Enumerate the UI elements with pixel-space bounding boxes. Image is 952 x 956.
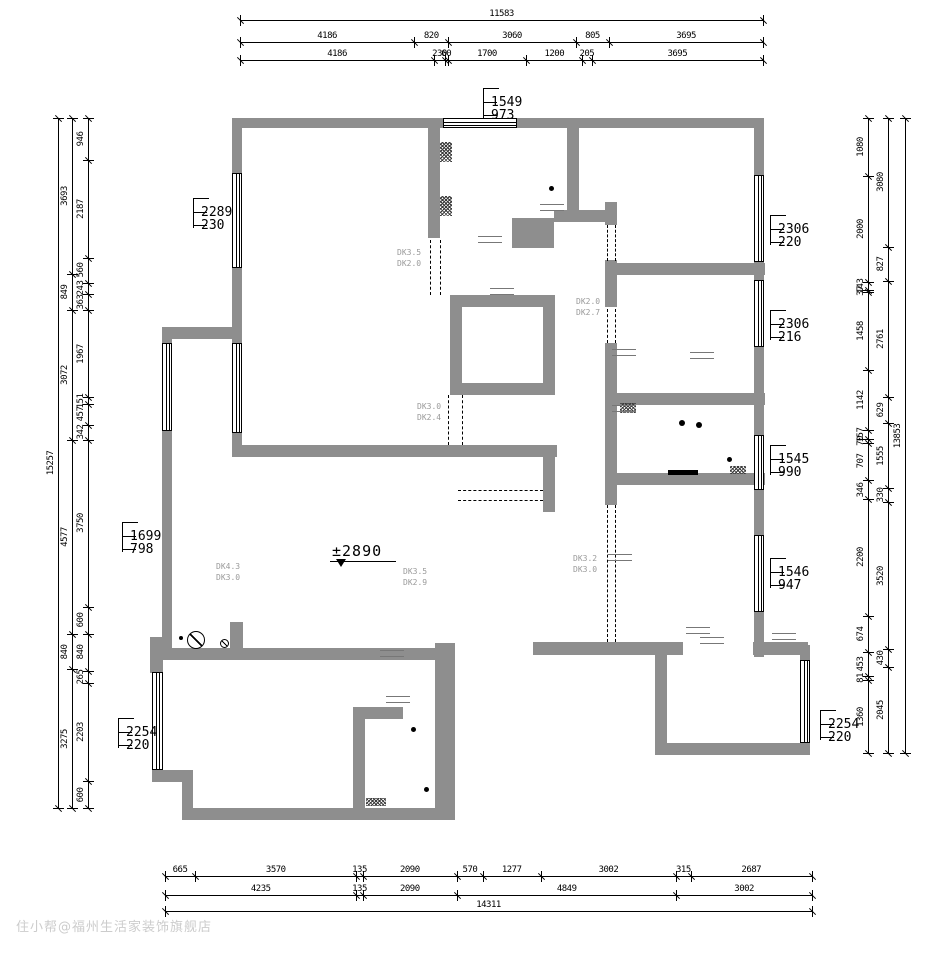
dim-label: 2687 <box>726 865 776 875</box>
bracket-line <box>820 710 836 711</box>
dim-label: 3080 <box>876 157 886 207</box>
annotation-tick <box>386 702 410 703</box>
bracket-line <box>770 310 771 340</box>
fixture-dot <box>179 636 183 640</box>
dim-label: 2203 <box>76 707 86 757</box>
window <box>754 175 764 262</box>
annotation-tick <box>540 204 564 205</box>
annotation-tick <box>690 352 714 353</box>
dim-line <box>165 895 812 896</box>
floorplan-canvas: ±2890 住小帮@福州生活家装饰旗舰店 1158341868203060805… <box>0 0 952 956</box>
window <box>152 672 163 770</box>
wall <box>232 302 242 343</box>
bracket-line <box>770 215 771 245</box>
fixture-bar <box>668 470 698 475</box>
dim-label: 430 <box>876 633 886 683</box>
bracket-label: 220 <box>778 236 801 249</box>
dim-label: 1080 <box>856 122 866 172</box>
bracket-line <box>193 198 194 228</box>
bracket-label: 216 <box>778 331 801 344</box>
wall <box>232 118 443 128</box>
dim-label: 2761 <box>876 314 886 364</box>
dim-label: 849 <box>60 267 70 317</box>
bracket-line <box>122 522 138 523</box>
fixture-dot <box>727 457 732 462</box>
dim-label: 3072 <box>60 350 70 400</box>
bracket-label: 230 <box>201 219 224 232</box>
dim-label: 820 <box>406 31 456 41</box>
dashed-opening <box>440 240 441 295</box>
wall <box>754 347 764 435</box>
dim-ext <box>165 890 166 901</box>
dim-label: 315 <box>658 865 708 875</box>
dim-ext <box>526 55 527 66</box>
dim-ext <box>883 753 894 754</box>
dim-label: 14311 <box>464 900 514 910</box>
wall <box>605 202 617 225</box>
dim-ext <box>812 871 813 882</box>
wall <box>450 295 462 393</box>
annotation-tick <box>490 294 514 295</box>
dim-label: 827 <box>876 239 886 289</box>
dim-ext <box>863 370 874 371</box>
annotation-tick <box>612 355 636 356</box>
dim-label: 3002 <box>583 865 633 875</box>
dim-label: 3750 <box>76 498 86 548</box>
fixture-dot <box>424 787 429 792</box>
dim-ext <box>883 118 894 119</box>
dim-label: 4186 <box>302 31 352 41</box>
dim-ext <box>240 37 241 48</box>
wall <box>543 295 555 395</box>
fixture-dot <box>549 186 554 191</box>
watermark-text: 住小帮@福州生活家装饰旗舰店 <box>16 916 212 935</box>
dim-line <box>240 60 763 61</box>
wall <box>232 268 242 302</box>
dim-ext <box>240 55 241 66</box>
dim-ext <box>676 890 677 901</box>
fixture-dot <box>411 727 416 732</box>
dim-ext <box>900 118 911 119</box>
dim-label: 363 <box>76 277 86 327</box>
wall <box>655 655 667 755</box>
dim-ext <box>763 15 764 26</box>
dim-label: 629 <box>876 385 886 435</box>
wall <box>605 343 617 473</box>
dim-label: 135 <box>335 865 385 875</box>
dim-label: 13853 <box>893 411 903 461</box>
window <box>754 535 764 612</box>
dim-ext <box>457 890 458 901</box>
bracket-line <box>483 88 499 89</box>
annotation-tick <box>772 639 796 640</box>
bracket-line <box>483 88 484 118</box>
fixture-dot <box>679 420 685 426</box>
dim-ext <box>763 55 764 66</box>
window <box>232 343 242 433</box>
dim-label: 135 <box>335 884 385 894</box>
wall <box>428 128 440 238</box>
dashed-opening <box>607 505 608 642</box>
bracket-line <box>820 710 821 740</box>
faint-label: DK3.0 <box>573 565 597 574</box>
annotation-tick <box>772 633 796 634</box>
annotation-tick <box>540 210 564 211</box>
dim-ext <box>763 37 764 48</box>
dashed-opening <box>458 490 543 491</box>
dim-ext <box>53 808 64 809</box>
dim-label: 330 <box>876 470 886 520</box>
annotation-tick <box>612 411 636 412</box>
wall <box>754 128 764 175</box>
wall <box>517 118 764 128</box>
dashed-opening <box>615 309 616 343</box>
bracket-line <box>770 310 786 311</box>
bracket-label: 990 <box>778 466 801 479</box>
fixture-circle <box>187 631 205 649</box>
dim-label: 4849 <box>542 884 592 894</box>
hatch-column <box>440 142 452 162</box>
dim-label: 946 <box>76 114 86 164</box>
fixture-circle <box>220 639 229 648</box>
dim-label: 600 <box>76 770 86 820</box>
dim-label: 805 <box>567 31 617 41</box>
dim-label: 2200 <box>856 532 866 582</box>
dim-label: 342 <box>76 407 86 457</box>
wall <box>182 782 193 808</box>
dim-label: 4577 <box>60 512 70 562</box>
dim-line <box>888 118 889 753</box>
dashed-opening <box>607 225 608 261</box>
dim-label: 3695 <box>652 49 702 59</box>
window <box>754 435 764 490</box>
dim-label: 2045 <box>876 685 886 735</box>
dim-label: 4186 <box>312 49 362 59</box>
dim-ext <box>812 890 813 901</box>
annotation-tick <box>608 560 632 561</box>
annotation-tick <box>612 349 636 350</box>
bracket-label: 947 <box>778 579 801 592</box>
bracket-label: 798 <box>130 543 153 556</box>
bracket-line <box>770 445 771 475</box>
hatch-column <box>730 466 746 474</box>
wall <box>800 743 810 755</box>
wall <box>232 445 557 457</box>
faint-label: DK3.2 <box>573 554 597 563</box>
annotation-tick <box>478 242 502 243</box>
dim-ext <box>900 753 911 754</box>
faint-label: DK3.0 <box>417 402 441 411</box>
annotation-tick <box>608 554 632 555</box>
bracket-label: 973 <box>491 109 514 122</box>
dashed-opening <box>448 395 449 445</box>
wall <box>162 431 172 648</box>
bracket-line <box>770 215 786 216</box>
wall <box>543 457 555 512</box>
dim-line <box>88 118 89 808</box>
dim-label: 840 <box>60 627 70 677</box>
wall <box>230 622 243 648</box>
dim-ext <box>240 15 241 26</box>
annotation-tick <box>386 696 410 697</box>
bracket-label: 220 <box>126 739 149 752</box>
bracket-line <box>770 445 786 446</box>
dim-label: 665 <box>155 865 205 875</box>
bracket-line <box>770 558 786 559</box>
faint-label: DK2.4 <box>417 413 441 422</box>
level-triangle-icon <box>336 559 346 567</box>
wall <box>152 770 193 782</box>
wall <box>435 643 455 820</box>
wall <box>353 707 403 719</box>
wall <box>533 642 683 655</box>
dim-line <box>240 20 763 21</box>
annotation-tick <box>700 643 724 644</box>
dim-label: 3695 <box>661 31 711 41</box>
bracket-line <box>118 718 134 719</box>
dim-label: 3693 <box>60 171 70 221</box>
dashed-opening <box>430 240 431 295</box>
bracket-line <box>118 718 119 748</box>
dim-line <box>905 118 906 753</box>
dashed-opening <box>615 505 616 642</box>
window <box>800 660 810 743</box>
dim-label: 11583 <box>477 9 527 19</box>
dim-ext <box>165 906 166 917</box>
hatch-column <box>440 196 452 216</box>
annotation-tick <box>686 627 710 628</box>
window <box>754 280 764 347</box>
dim-line <box>240 42 763 43</box>
dim-label: 1458 <box>856 306 866 356</box>
faint-label: DK3.0 <box>216 573 240 582</box>
dim-ext <box>812 906 813 917</box>
annotation-tick <box>686 633 710 634</box>
window <box>232 173 242 268</box>
dim-label: 15257 <box>46 438 56 488</box>
wall <box>754 490 764 535</box>
faint-label: DK4.3 <box>216 562 240 571</box>
wall <box>182 808 455 820</box>
wall <box>450 383 555 395</box>
annotation-tick <box>478 236 502 237</box>
dim-ext <box>863 753 874 754</box>
faint-label: DK2.0 <box>397 259 421 268</box>
annotation-tick <box>690 358 714 359</box>
dim-label: 2090 <box>385 884 435 894</box>
hatch-column <box>366 798 386 806</box>
dim-line <box>165 876 812 877</box>
dim-label: 4235 <box>236 884 286 894</box>
dashed-opening <box>458 500 543 501</box>
annotation-tick <box>380 650 404 651</box>
fixture-dot <box>696 422 702 428</box>
dim-ext <box>863 118 874 119</box>
dim-label: 3060 <box>487 31 537 41</box>
dim-line <box>165 911 812 912</box>
dim-label: 2187 <box>76 184 86 234</box>
dim-label: 3275 <box>60 714 70 764</box>
wall <box>152 660 163 672</box>
dim-line <box>868 118 869 753</box>
annotation-tick <box>490 288 514 289</box>
dim-line <box>58 118 59 808</box>
dim-ext <box>541 871 542 882</box>
faint-label: DK2.0 <box>576 297 600 306</box>
window <box>162 343 172 431</box>
annotation-tick <box>380 656 404 657</box>
dim-ext <box>863 176 874 177</box>
dim-label: 205 <box>562 49 612 59</box>
wall <box>162 327 232 339</box>
dim-label: 3520 <box>876 551 886 601</box>
faint-label: DK2.9 <box>403 578 427 587</box>
wall <box>605 263 765 275</box>
bracket-line <box>122 522 123 552</box>
dim-label: 1700 <box>462 49 512 59</box>
dim-ext <box>53 118 64 119</box>
wall <box>450 295 555 307</box>
dim-label: 265 <box>76 652 86 702</box>
bracket-label: 220 <box>828 731 851 744</box>
dim-label: 346 <box>856 465 866 515</box>
faint-label: DK3.5 <box>397 248 421 257</box>
wall <box>655 743 810 755</box>
annotation-tick <box>612 405 636 406</box>
dim-label: 3002 <box>719 884 769 894</box>
dim-line <box>72 118 73 808</box>
bracket-line <box>193 198 209 199</box>
wall <box>353 707 365 808</box>
annotation-tick <box>700 637 724 638</box>
level-mark: ±2890 <box>330 542 396 562</box>
wall <box>232 128 242 173</box>
dim-label: 1967 <box>76 329 86 379</box>
dashed-opening <box>607 309 608 343</box>
bracket-line <box>770 558 771 588</box>
faint-label: DK2.7 <box>576 308 600 317</box>
dashed-opening <box>615 225 616 261</box>
faint-label: DK3.5 <box>403 567 427 576</box>
dim-label: 3570 <box>251 865 301 875</box>
wall <box>800 645 810 660</box>
dim-label: 2090 <box>385 865 435 875</box>
dim-label: 1277 <box>487 865 537 875</box>
wall <box>512 218 554 248</box>
wall <box>567 128 579 216</box>
dim-label: 2000 <box>856 204 866 254</box>
dashed-opening <box>462 395 463 445</box>
